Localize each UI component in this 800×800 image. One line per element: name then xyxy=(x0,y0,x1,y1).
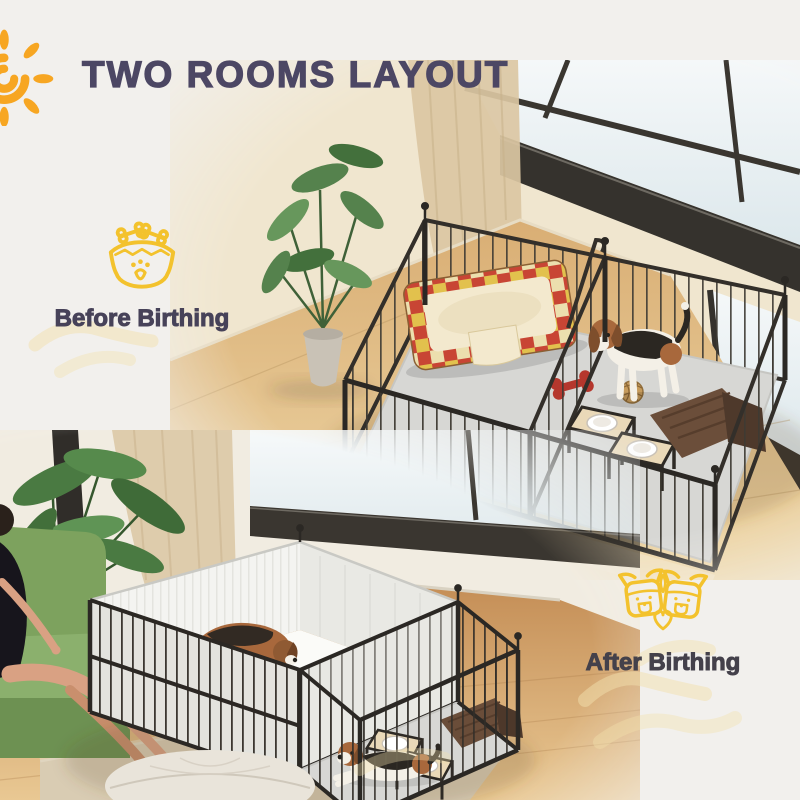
before-birthing-label-group: Before Birthing xyxy=(30,218,254,333)
puppies-heart-icon xyxy=(615,566,711,645)
after-birthing-label-group: After Birthing xyxy=(545,566,781,677)
after-birthing-label: After Birthing xyxy=(545,649,781,677)
product-infographic: TWO ROOMS LAYOUT xyxy=(0,0,800,800)
sun-icon xyxy=(0,26,66,126)
page-title: TWO ROOMS LAYOUT xyxy=(82,54,509,96)
before-birthing-label: Before Birthing xyxy=(30,305,254,333)
scene-after-photo xyxy=(0,430,640,800)
after-scene-illustration xyxy=(0,430,640,800)
dog-bowl-icon xyxy=(95,218,189,301)
